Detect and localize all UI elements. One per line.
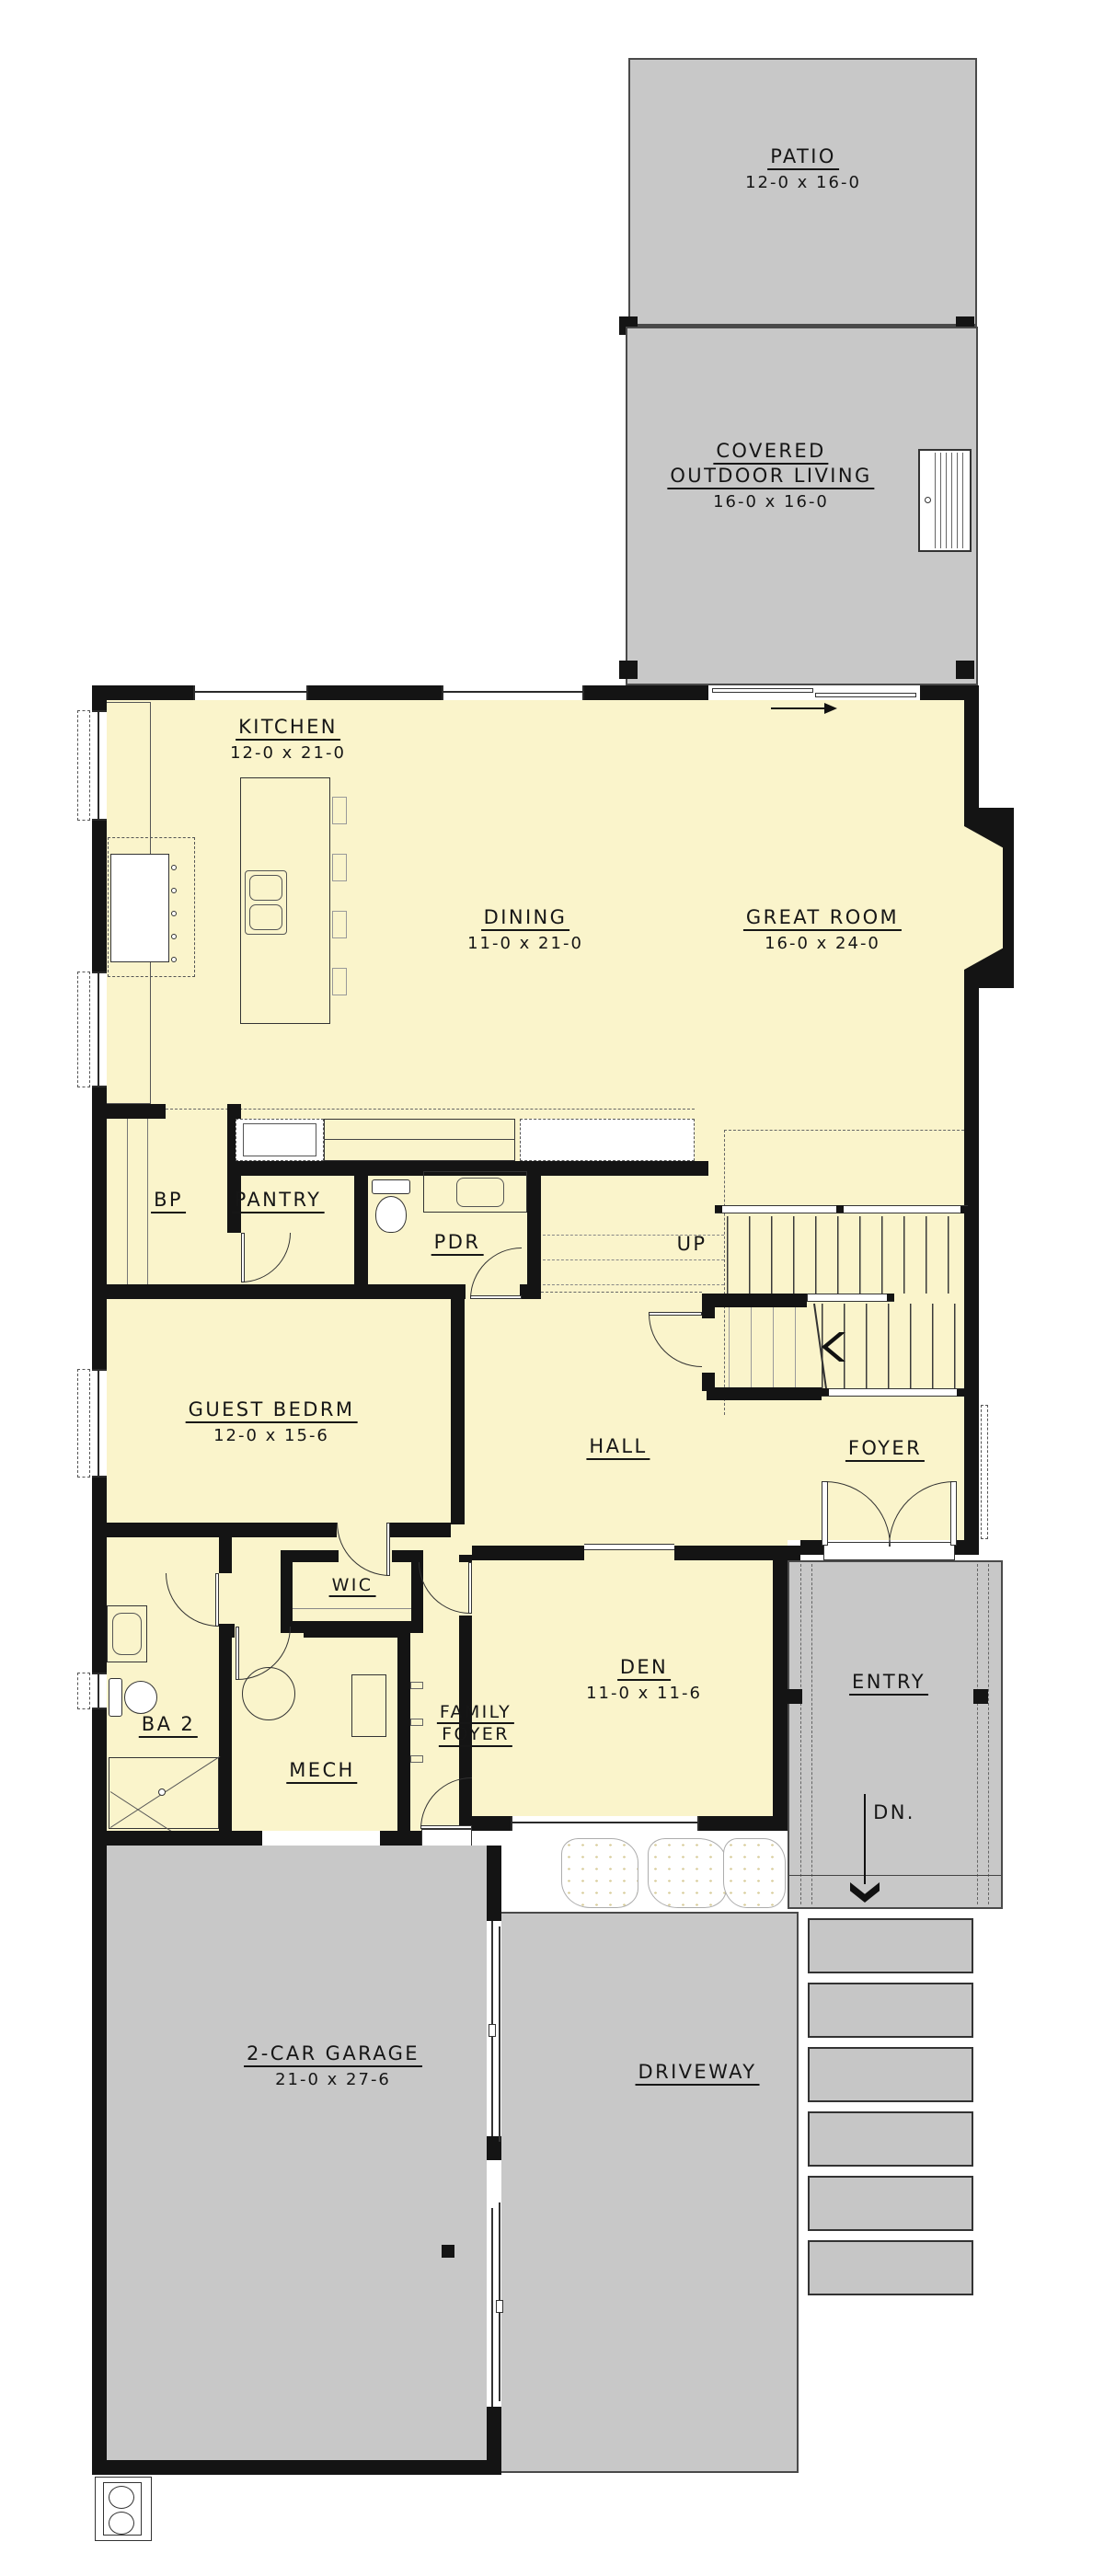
kitchen-top-window (193, 685, 308, 700)
porch-dash-left-2 (811, 1564, 812, 1904)
hall-ceiling-dash-3 (543, 1284, 724, 1285)
garage-floor (107, 1846, 487, 2460)
mech-water-heater (242, 1667, 295, 1720)
wic-shelf-line (293, 1608, 411, 1609)
paver-step-5 (808, 2176, 973, 2231)
entry-porch (788, 1560, 1003, 1909)
hall-ceiling-dash-2 (543, 1259, 724, 1260)
driveway-surface (501, 1912, 799, 2473)
covered-post-left (619, 661, 638, 679)
island-sink-basin-2 (249, 904, 282, 930)
stair-rail-top-post-3 (960, 1206, 968, 1213)
dn-arrow-line (864, 1794, 866, 1884)
foyer-name: FOYER (845, 1437, 925, 1462)
wall-den-top-a (472, 1546, 584, 1560)
driveway-label: DRIVEWAY (636, 2061, 760, 2086)
wic-label: WIC (329, 1575, 376, 1597)
stair-rail-top-post-2 (836, 1205, 844, 1213)
dining-label: DINING 11-0 x 21-0 (467, 906, 583, 953)
island-stool-4 (332, 968, 347, 995)
hall-opening-dash (541, 1292, 702, 1293)
wall-garage-bottom (92, 2460, 501, 2475)
stair-rail-bottom (822, 1388, 964, 1397)
patio-area (628, 58, 977, 327)
wall-guest-right (451, 1299, 465, 1524)
range-knob-1 (171, 865, 177, 870)
dining-dims: 11-0 x 21-0 (467, 934, 583, 953)
stair-rail-mid (807, 1294, 894, 1302)
wall-right-upper (964, 685, 979, 810)
stair-closet-wall-bottom (707, 1387, 822, 1400)
pdr-label: PDR (431, 1231, 484, 1256)
garage-door-track-2a (491, 2208, 493, 2407)
family-foyer-name-line1: FAMILY (437, 1702, 514, 1724)
wall-den-right (773, 1555, 788, 1831)
sliding-door-panel-left (712, 688, 813, 693)
wic-name: WIC (329, 1575, 376, 1597)
famfoyer-bench-2 (410, 1719, 423, 1726)
left-window-kitchen-1 (92, 710, 107, 821)
covered-post-right (956, 661, 974, 679)
den-label: DEN 11-0 x 11-6 (586, 1656, 702, 1703)
left-window-guest (92, 1369, 107, 1478)
pdr-name: PDR (431, 1231, 484, 1256)
floor-plan: PATIO 12-0 x 16-0 COVERED OUTDOOR LIVING… (0, 0, 1104, 2576)
island-sink-basin-1 (249, 875, 282, 901)
porch-dash-right-1 (977, 1564, 978, 1904)
great-room-label: GREAT ROOM 16-0 x 24-0 (743, 906, 902, 953)
dining-name: DINING (481, 906, 570, 931)
guest-bedrm-dims: 12-0 x 15-6 (213, 1426, 329, 1445)
entry-label: ENTRY (849, 1671, 928, 1696)
ba2-sink (112, 1613, 142, 1655)
covered-name-line1: COVERED (713, 440, 828, 465)
covered-name-line2: OUTDOOR LIVING (667, 465, 874, 489)
wall-pdr-right (527, 1176, 541, 1284)
hall-label: HALL (586, 1435, 650, 1460)
stair-rail-mid-post (887, 1294, 894, 1301)
range-knob-3 (171, 911, 177, 916)
garage-label: 2-CAR GARAGE 21-0 x 27-6 (244, 2042, 422, 2089)
wall-ba2-right-b (219, 1627, 232, 1831)
pdr-sink (456, 1178, 504, 1207)
pdr-toilet-tank (372, 1179, 410, 1194)
wall-service-bottom-post (520, 1284, 541, 1299)
covered-outdoor-living-label: COVERED OUTDOOR LIVING 16-0 x 16-0 (667, 440, 874, 512)
family-foyer-name-line2: FOYER (439, 1724, 512, 1746)
wall-left (92, 685, 107, 2475)
ba2-name: BA 2 (139, 1713, 198, 1738)
patio-name: PATIO (767, 145, 839, 170)
fridge-inner (243, 1123, 316, 1156)
wall-foyer-bottom-b (955, 1540, 979, 1555)
wall-garage-top-a (92, 1831, 262, 1846)
paver-step-3 (808, 2047, 973, 2102)
great-room-name: GREAT ROOM (743, 906, 902, 931)
wall-garage-top-b (380, 1831, 421, 1846)
family-foyer-label: FAMILY FOYER (437, 1702, 514, 1747)
garage-door-handle-1 (489, 2024, 496, 2037)
wall-guest-bottom-a (107, 1523, 337, 1537)
pantry-name: PANTRY (232, 1189, 325, 1213)
guest-bedrm-label: GUEST BEDRM 12-0 x 15-6 (186, 1398, 358, 1445)
left-window-ba2 (92, 1673, 107, 1709)
paver-step-6 (808, 2240, 973, 2295)
garage-door-track-1b (499, 1926, 500, 2142)
kitchen-name: KITCHEN (236, 716, 340, 741)
paver-step-1 (808, 1918, 973, 1973)
outdoor-fireplace-knob (925, 497, 931, 503)
left-window-casing-1 (77, 710, 90, 821)
stair-treads-under-dashed (729, 1304, 810, 1388)
hall-name: HALL (586, 1435, 650, 1460)
great-room-fireplace-inner (964, 826, 1003, 970)
garage-door-handle-2 (496, 2300, 503, 2313)
wall-bp-top (92, 1104, 166, 1119)
ba2-shower-drain (158, 1788, 166, 1796)
island-stool-3 (332, 911, 347, 938)
porch-step-line (789, 1875, 1001, 1876)
stair-closet-wall-left-a (702, 1307, 715, 1318)
island-stool-1 (332, 797, 347, 824)
outdoor-fireplace (918, 449, 972, 552)
mech-label: MECH (286, 1759, 357, 1784)
utility-meter-dial-1 (109, 2486, 134, 2509)
garage-column (442, 2245, 454, 2258)
stair-upper-floor-dash-left (724, 1130, 725, 1415)
wall-foyer-bottom-a (800, 1540, 823, 1555)
wall-mech-top-a (219, 1624, 235, 1638)
foyer-sidelight (981, 1405, 988, 1539)
dn-label: DN. (870, 1801, 918, 1824)
great-room-arrow-head (824, 703, 837, 714)
ba2-toilet-bowl (124, 1681, 157, 1714)
garage-dims: 21-0 x 27-6 (275, 2070, 391, 2089)
dining-top-window (442, 685, 584, 700)
stair-treads-upper (727, 1216, 964, 1294)
sliding-door-panel-right (815, 693, 916, 697)
ba2-label: BA 2 (139, 1713, 198, 1738)
wall-mech-right (397, 1624, 410, 1831)
stair-treads-lower (822, 1304, 964, 1388)
foyer-label: FOYER (845, 1437, 925, 1462)
counter-run-line (324, 1139, 515, 1140)
porch-dash-right-2 (988, 1564, 989, 1904)
dn-text: DN. (870, 1801, 918, 1824)
wall-garage-right-bottom (487, 2407, 501, 2475)
guest-bedrm-name: GUEST BEDRM (186, 1398, 358, 1423)
mech-equipment (351, 1674, 386, 1737)
shrub-2 (648, 1838, 727, 1908)
bp-shelf-line-1 (127, 1119, 128, 1284)
stair-rail-bottom-post-2 (957, 1389, 964, 1397)
island-stool-2 (332, 854, 347, 881)
wall-mech-top-b (304, 1624, 410, 1638)
stair-rail-bottom-post-1 (822, 1388, 829, 1396)
wall-service-bottom (107, 1284, 466, 1299)
den-name: DEN (617, 1656, 671, 1681)
paver-step-4 (808, 2111, 973, 2167)
range-knob-5 (171, 957, 177, 962)
porch-post-left (788, 1689, 802, 1704)
left-window-casing-2 (77, 972, 90, 1087)
pdr-toilet-bowl (375, 1196, 407, 1233)
famfoyer-garage-threshold (421, 1829, 472, 1847)
utility-meter-dial-2 (109, 2512, 134, 2535)
shrub-1 (561, 1838, 638, 1908)
shrub-3 (723, 1838, 786, 1908)
kitchen-soffit-dash (166, 1109, 695, 1110)
great-room-dims: 16-0 x 24-0 (765, 934, 880, 953)
porch-dash-left-1 (800, 1564, 801, 1904)
patio-dims: 12-0 x 16-0 (745, 173, 861, 192)
wall-pantry-pdr-divider (354, 1176, 368, 1284)
entry-name: ENTRY (849, 1671, 928, 1696)
range-knob-4 (171, 934, 177, 939)
famfoyer-bench-3 (410, 1755, 423, 1763)
stair-closet-wall-top (702, 1294, 807, 1307)
up-text: UP (674, 1233, 710, 1256)
mech-name: MECH (286, 1759, 357, 1784)
range-knob-2 (171, 888, 177, 893)
covered-dims: 16-0 x 16-0 (713, 492, 829, 512)
wall-garage-right-top (487, 1846, 501, 1921)
garage-name: 2-CAR GARAGE (244, 2042, 422, 2067)
bp-shelf-line-2 (147, 1119, 148, 1284)
bp-label: BP (151, 1189, 186, 1213)
ba2-toilet-tank (109, 1678, 122, 1717)
patio-label: PATIO 12-0 x 16-0 (745, 145, 861, 192)
counter-run (324, 1119, 515, 1161)
tall-cabinet-box (520, 1119, 695, 1161)
left-window-kitchen-2 (92, 972, 107, 1087)
outdoor-fireplace-hatch (935, 453, 968, 548)
great-room-arrow-line (771, 707, 824, 709)
wall-famfoyer-right-a (459, 1555, 472, 1562)
pantry-label: PANTRY (232, 1189, 325, 1213)
up-label: UP (674, 1233, 710, 1256)
den-cased-opening (584, 1544, 674, 1550)
stair-upper-floor-dash-top (724, 1130, 964, 1131)
wall-guest-bottom-b (390, 1523, 451, 1537)
left-window-casing-4 (77, 1673, 90, 1709)
porch-post-right (973, 1689, 988, 1704)
den-dims: 11-0 x 11-6 (586, 1684, 702, 1703)
paver-step-2 (808, 1983, 973, 2038)
wall-right-lower (964, 988, 979, 1555)
driveway-name: DRIVEWAY (636, 2061, 760, 2086)
wall-ba2-right-a (219, 1537, 232, 1573)
famfoyer-bench-1 (410, 1682, 423, 1689)
bp-name: BP (151, 1189, 186, 1213)
den-window (511, 1816, 699, 1831)
kitchen-label: KITCHEN 12-0 x 21-0 (230, 716, 346, 763)
left-window-casing-3 (77, 1369, 90, 1478)
range (110, 854, 169, 962)
stair-rail-top-post-1 (715, 1205, 722, 1213)
kitchen-dims: 12-0 x 21-0 (230, 743, 346, 763)
